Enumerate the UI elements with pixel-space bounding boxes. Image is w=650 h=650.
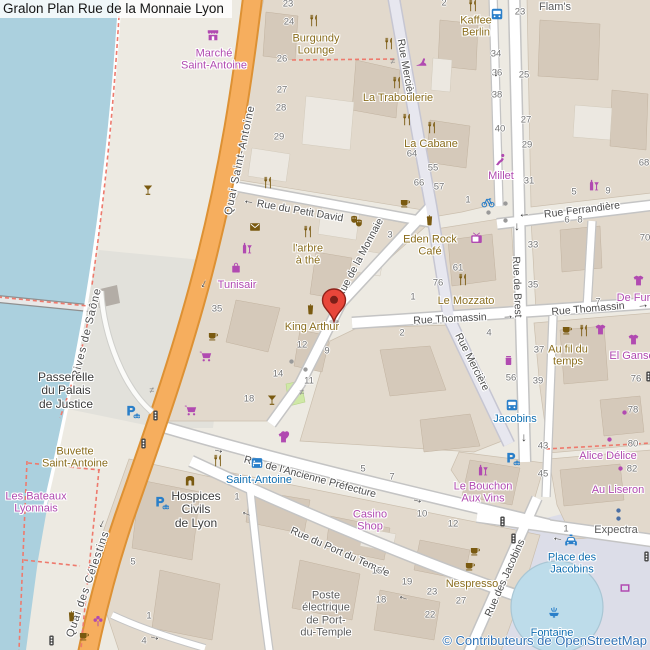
dot-icon <box>486 210 491 215</box>
parking-icon <box>506 452 520 466</box>
house-number: 2 <box>399 328 404 339</box>
cocktail-icon <box>266 394 278 406</box>
place-label-buvette-saint-antoine: BuvetteSaint-Antoine <box>42 446 108 471</box>
oneway-arrow-icon: → <box>410 491 425 508</box>
page-title: Gralon Plan Rue de la Monnaie Lyon <box>0 0 232 18</box>
restaurant-icon <box>400 113 413 126</box>
restaurant-icon <box>382 37 395 50</box>
place-label-nespresso: Nespresso <box>446 578 499 590</box>
house-number: 34 <box>491 49 502 60</box>
dot-icon <box>616 516 621 521</box>
osm-attribution-link[interactable]: © Contributeurs de OpenStreetMap <box>442 633 647 648</box>
taxi-icon <box>563 533 579 549</box>
house-number: 35 <box>212 304 223 315</box>
wine-icon <box>587 179 600 192</box>
house-number: 1 <box>465 195 470 206</box>
house-number: 76 <box>631 374 642 385</box>
bus-icon <box>491 8 503 20</box>
house-number: 14 <box>273 369 284 380</box>
house-number: 80 <box>628 439 639 450</box>
house-number: 45 <box>538 469 549 480</box>
house-number: 82 <box>627 464 638 475</box>
place-label-saint-antoine-hotel: Saint-Antoine <box>226 474 292 486</box>
place-label-au-liseron: Au Liseron <box>592 484 645 496</box>
cafe-icon <box>469 545 481 557</box>
drink-icon <box>305 304 316 315</box>
place-label-tunisair: Tunisair <box>218 279 257 291</box>
house-number: 35 <box>528 280 539 291</box>
oneway-arrow-icon: → <box>147 628 162 644</box>
place-label-larbre-a-the: l'arbreà thé <box>293 243 323 268</box>
place-label-hospices-civils-de-lyon: HospicesCivilsde Lyon <box>171 490 220 530</box>
oneway-arrow-icon: ← <box>239 503 255 520</box>
place-label-el-ganso: El Ganso <box>609 350 650 362</box>
street-label-quai-des-c-lestins: Quai des Célestins <box>64 529 112 639</box>
house-number: 26 <box>277 54 288 65</box>
cafe-icon <box>464 560 476 572</box>
restaurant-icon <box>261 176 274 189</box>
house-number: 3 <box>387 230 392 241</box>
gate-barrier-icon: ≠ <box>150 385 155 395</box>
house-number: 4 <box>141 636 146 647</box>
place-label-le-mozzato: Le Mozzato <box>438 295 495 307</box>
house-number: 6 <box>564 215 569 226</box>
parking-icon <box>126 405 140 419</box>
cart-icon <box>199 350 212 363</box>
masks-icon <box>350 215 363 228</box>
house-number: 15 <box>372 566 383 577</box>
cafe-icon <box>399 197 411 209</box>
bed-icon <box>251 457 263 469</box>
arch-icon <box>184 475 196 487</box>
place-label-marche-saint-antoine: MarchéSaint-Antoine <box>181 48 247 73</box>
house-number: 8 <box>577 215 582 226</box>
place-label-au-fil-du-temps: Au fil dutemps <box>548 344 588 369</box>
oneway-arrow-icon: ← <box>242 192 256 208</box>
street-label-rue-merci-re: Rue Mercière <box>452 331 491 393</box>
house-number: 1 <box>146 611 151 622</box>
house-number: 37 <box>534 345 545 356</box>
house-number: 12 <box>297 340 308 351</box>
house-number: 43 <box>538 441 549 452</box>
tshirt-icon <box>632 274 645 287</box>
dot-icon <box>607 437 612 442</box>
house-number: 31 <box>524 176 535 187</box>
restaurant-icon <box>390 76 403 89</box>
dot-icon <box>503 218 508 223</box>
house-number: 29 <box>274 132 285 143</box>
oneway-arrow-icon: → <box>502 308 515 323</box>
house-number: 57 <box>434 182 445 193</box>
flower-icon <box>92 615 104 627</box>
house-number: 56 <box>506 373 517 384</box>
oneway-arrow-icon: ← <box>91 515 109 532</box>
street-label-rue-du-petit-david: Rue du Petit David <box>256 197 344 224</box>
wine-icon <box>240 242 253 255</box>
place-label-poste-electrique: Posteélectriquede Port-du-Temple <box>300 589 351 638</box>
dot-icon <box>618 466 623 471</box>
place-label-casino-shop: CasinoShop <box>353 509 387 534</box>
place-label-burgundy-lounge: BurgundyLounge <box>292 33 339 58</box>
bus-icon <box>506 399 518 411</box>
house-number: 66 <box>414 178 425 189</box>
house-number: 2 <box>441 0 446 9</box>
house-number: 23 <box>515 7 526 18</box>
house-number: 55 <box>428 163 439 174</box>
house-number: 64 <box>407 149 418 160</box>
wine-icon <box>476 464 489 477</box>
bag-icon <box>230 262 242 274</box>
oneway-arrow-icon: ↓ <box>514 219 520 233</box>
street-label-rue-thomassin: Rue Thomassin <box>413 311 487 327</box>
house-number: 1 <box>234 492 239 503</box>
restaurant-icon <box>211 454 224 467</box>
gate-barrier-icon: ≠ <box>391 56 396 66</box>
parking-icon <box>155 496 169 510</box>
house-number: 68 <box>639 158 650 169</box>
place-label-passerelle-du-palais-de-justice: Passerelledu Palaisde Justice <box>38 371 94 411</box>
oneway-arrow-icon: ← <box>396 587 412 604</box>
oneway-arrow-icon: ↓ <box>521 430 527 444</box>
place-label-millet: Millet <box>488 170 514 182</box>
market-icon <box>206 28 220 42</box>
house-number: 5 <box>360 464 365 475</box>
traffic-icon <box>643 371 650 382</box>
location-pin-marker <box>321 288 347 324</box>
traffic-icon <box>508 533 519 544</box>
traffic-icon <box>46 635 57 646</box>
cocktail-icon <box>142 184 154 196</box>
restaurant-icon <box>307 14 320 27</box>
place-label-les-bateaux-lyonnais: Les BateauxLyonnais <box>5 491 66 516</box>
house-number: 18 <box>376 595 387 606</box>
restaurant-icon <box>456 273 469 286</box>
place-label-le-bouchon-aux-vins: Le BouchonAux Vins <box>454 481 513 506</box>
traffic-icon <box>138 438 149 449</box>
traffic-icon <box>150 410 161 421</box>
house-number: 7 <box>389 472 394 483</box>
frame-icon <box>619 582 631 594</box>
traffic-icon <box>497 516 508 527</box>
tshirt-icon <box>627 333 640 346</box>
dot-icon <box>616 508 621 513</box>
restaurant-icon <box>301 225 314 238</box>
house-number: 4 <box>486 328 491 339</box>
house-number: 5 <box>571 187 576 198</box>
dot-icon <box>303 367 308 372</box>
house-number: 28 <box>276 103 287 114</box>
house-number: 1 <box>410 292 415 303</box>
house-number: 18 <box>244 394 255 405</box>
house-number: 27 <box>456 596 467 607</box>
oneway-arrow-icon: ← <box>193 275 211 292</box>
street-label-rue-thomassin: Rue Thomassin <box>551 300 625 318</box>
house-number: 33 <box>528 240 539 251</box>
tv-icon <box>470 232 483 245</box>
house-number: 23 <box>283 0 294 10</box>
house-number: 25 <box>519 70 530 81</box>
house-number: 27 <box>521 115 532 126</box>
place-label-flams: Flam's <box>539 1 571 13</box>
house-number: 11 <box>304 376 314 387</box>
drink-icon <box>66 611 77 622</box>
dot-icon <box>622 410 627 415</box>
street-label-rives-de-sa-ne: Rives de Saône <box>70 286 104 379</box>
map-labels-layer: Quai Saint-AntoineQuai des CélestinsRive… <box>0 0 650 650</box>
jar-icon <box>503 355 514 366</box>
place-label-eden-rock-cafe: Eden RockCafé <box>403 234 457 259</box>
house-number: 29 <box>522 140 533 151</box>
tshirt-icon <box>594 323 607 336</box>
house-number: 78 <box>628 405 639 416</box>
house-number: 23 <box>427 587 438 598</box>
house-number: 7 <box>595 297 600 308</box>
shoe-icon <box>415 56 428 69</box>
house-number: 40 <box>495 124 506 135</box>
place-label-alice-delice: Alice Délice <box>579 450 636 462</box>
house-number: 10 <box>417 509 428 520</box>
house-number: 9 <box>324 346 329 357</box>
place-label-expectra: Expectra <box>594 524 637 536</box>
fountain-icon <box>547 605 561 619</box>
place-label-kaffee-berlin: KaffeeBerlin <box>460 15 492 40</box>
climber-icon <box>494 153 507 166</box>
traffic-icon <box>641 551 650 562</box>
cart-icon <box>184 404 197 417</box>
place-label-la-traboulerie: La Traboulerie <box>363 92 433 104</box>
heart-icon <box>279 429 291 441</box>
house-number: 19 <box>402 577 413 588</box>
house-number: 5 <box>130 557 135 568</box>
oneway-arrow-icon: → <box>636 297 649 312</box>
dot-icon <box>289 359 294 364</box>
oneway-arrow-icon: ↓ <box>493 65 499 79</box>
restaurant-icon <box>577 324 590 337</box>
house-number: 9 <box>605 186 610 197</box>
cafe-icon <box>78 630 90 642</box>
place-label-jacobins-stop: Jacobins <box>493 413 536 425</box>
house-number: 27 <box>277 85 288 96</box>
house-number: 12 <box>448 519 459 530</box>
bike-icon <box>481 195 495 209</box>
house-number: 38 <box>492 90 503 101</box>
dot-icon <box>503 201 508 206</box>
house-number: 76 <box>433 278 444 289</box>
house-number: 70 <box>640 233 650 244</box>
restaurant-icon <box>466 0 479 12</box>
envelope-icon <box>249 221 261 233</box>
restaurant-icon <box>425 121 438 134</box>
gate-barrier-icon: ≠ <box>300 387 305 397</box>
cafe-icon <box>207 330 219 342</box>
map-canvas[interactable]: Quai Saint-AntoineQuai des CélestinsRive… <box>0 0 650 650</box>
house-number: 39 <box>533 376 544 387</box>
house-number: 22 <box>425 610 436 621</box>
house-number: 24 <box>284 17 295 28</box>
cafe-icon <box>561 324 573 336</box>
place-label-place-des-jacobins: Place desJacobins <box>548 552 596 577</box>
drink-icon <box>424 215 435 226</box>
